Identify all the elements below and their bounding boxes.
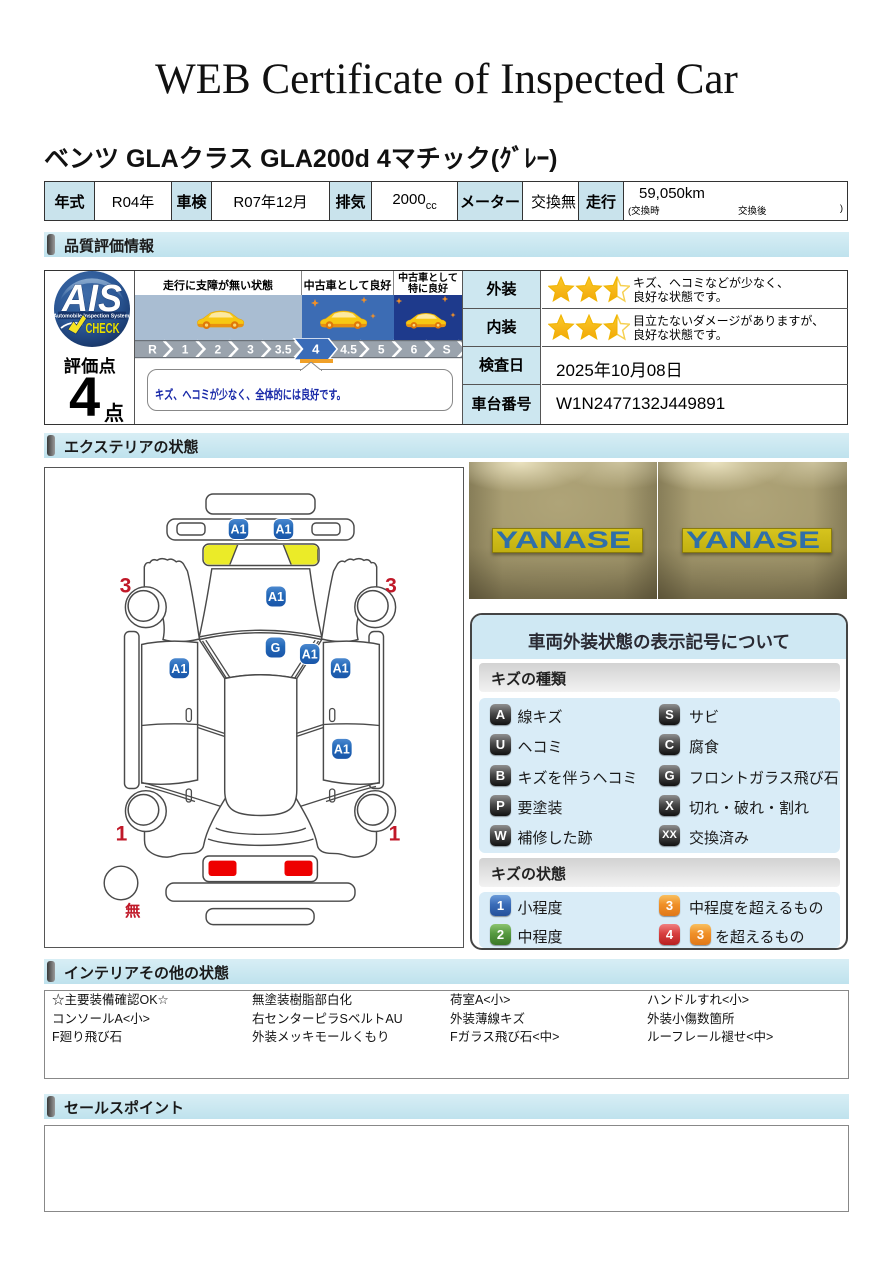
svg-text:A1: A1 bbox=[334, 742, 350, 756]
svg-text:A1: A1 bbox=[333, 662, 349, 676]
svg-text:3: 3 bbox=[247, 343, 254, 357]
svg-text:Automobile Inspection System,: Automobile Inspection System, bbox=[53, 314, 131, 320]
svg-text:R: R bbox=[148, 343, 157, 357]
svg-text:5: 5 bbox=[378, 343, 385, 357]
svg-text:1: 1 bbox=[116, 823, 128, 846]
svg-text:G: G bbox=[271, 641, 281, 655]
svg-text:1: 1 bbox=[389, 823, 401, 846]
svg-text:A1: A1 bbox=[268, 590, 284, 604]
svg-text:A1: A1 bbox=[302, 648, 318, 662]
svg-text:無: 無 bbox=[125, 901, 141, 920]
svg-text:A1: A1 bbox=[276, 523, 292, 537]
svg-text:6: 6 bbox=[411, 343, 418, 357]
svg-text:A1: A1 bbox=[231, 523, 247, 537]
svg-text:3: 3 bbox=[120, 575, 132, 598]
svg-text:1: 1 bbox=[182, 343, 189, 357]
svg-text:S: S bbox=[443, 343, 451, 357]
svg-text:3: 3 bbox=[385, 575, 397, 598]
svg-text:3.5: 3.5 bbox=[275, 343, 292, 357]
svg-text:4: 4 bbox=[312, 342, 320, 357]
svg-text:CHECK: CHECK bbox=[86, 321, 120, 337]
svg-text:2: 2 bbox=[214, 343, 221, 357]
svg-text:4.5: 4.5 bbox=[340, 343, 357, 357]
svg-text:A1: A1 bbox=[171, 662, 187, 676]
